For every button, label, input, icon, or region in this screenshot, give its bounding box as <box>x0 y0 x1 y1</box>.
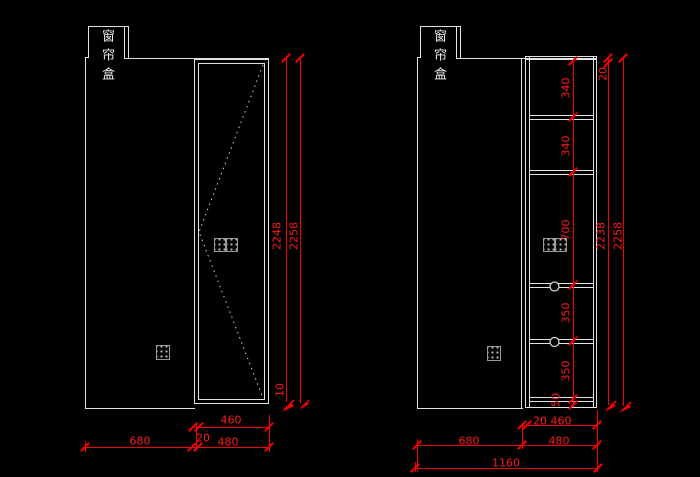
dim-label-gap: 20 <box>196 433 210 444</box>
dim-line-inner-height <box>608 57 609 405</box>
right-curtain-box-label: 窗帘盒 <box>431 29 445 86</box>
dim-arrow-head <box>282 403 294 412</box>
dim-label-total-height: 2258 <box>289 222 300 250</box>
dim-line-shelf-sections <box>573 59 574 407</box>
dim-label-section-5: 350 <box>561 361 572 382</box>
left-curtain-box-label: 窗帘盒 <box>99 29 113 86</box>
dim-label-bottom-gap: 10 <box>275 383 286 397</box>
dim-label-door-clear-width: 460 <box>221 415 242 426</box>
dim-label-panel-width: 680 <box>459 436 480 447</box>
cad-canvas: 窗帘盒 2248 2258 10 460 680 20 480 窗帘盒 340 … <box>0 0 700 477</box>
dim-label-panel-width: 680 <box>130 436 151 447</box>
shelf-pin-circle <box>550 282 559 291</box>
dim-line-panel-door-width <box>85 447 270 448</box>
dim-arrow-head <box>604 403 616 412</box>
dim-arrow-head <box>299 402 309 410</box>
dim-label-section-2: 340 <box>561 136 572 157</box>
shelf-pin-circle <box>550 338 559 347</box>
dim-arrow-head <box>619 404 631 413</box>
dim-label-inner-height: 2238 <box>596 222 607 250</box>
dim-label-total-width: 1160 <box>492 458 520 469</box>
dim-label-section-3: 700 <box>561 220 572 241</box>
dim-label-door-width: 480 <box>218 437 239 448</box>
door-swing-dashed-line <box>199 65 263 398</box>
dim-line-door-clear-width <box>195 427 269 428</box>
dim-label-top-board: 20 <box>598 67 609 81</box>
dim-label-section-4: 350 <box>561 303 572 324</box>
dim-line-panel-cabinet-width <box>417 445 597 446</box>
dim-label-gap: 20 <box>533 416 547 427</box>
dim-label-door-height: 2248 <box>272 222 283 250</box>
dim-label-clear-width: 460 <box>551 416 572 427</box>
dim-label-total-height: 2258 <box>613 222 624 250</box>
dim-label-section-1: 340 <box>561 78 572 99</box>
dim-label-cabinet-width: 480 <box>549 436 570 447</box>
dim-label-bottom-board: 50 <box>551 393 562 407</box>
